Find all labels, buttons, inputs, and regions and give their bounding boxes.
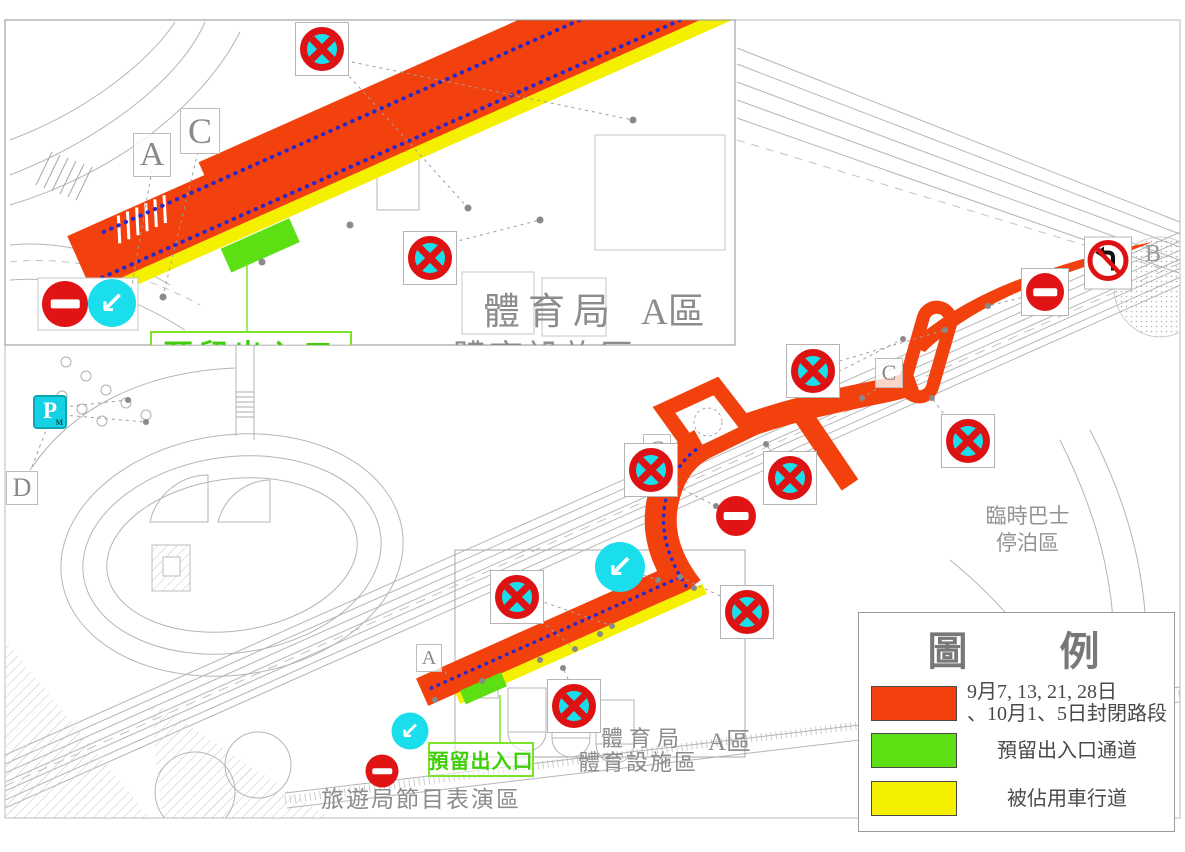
main-reserved-exit-box: 預留出入口 xyxy=(428,742,534,777)
no-stopping-sign xyxy=(786,344,840,398)
closed-road-label-line1: 9月7, 13, 21, 28日 xyxy=(967,681,1167,703)
legend-item-occupied-lane: 被佔用車行道 xyxy=(871,781,1167,816)
no-stopping-sign xyxy=(720,585,774,639)
bus-area-line2: 停泊區 xyxy=(985,530,1070,557)
reserved-passage-label: 預留出入口通道 xyxy=(967,740,1167,762)
no-entry-sign xyxy=(1021,268,1069,316)
no-entry-sign xyxy=(42,281,88,327)
no-stopping-sign xyxy=(941,414,995,468)
no-left-turn-sign xyxy=(1084,237,1132,290)
parking-sign-sub: M xyxy=(55,419,63,427)
main-zone-a-label: A區 xyxy=(708,722,751,758)
main-sports-facility-label: 體育設施區 xyxy=(578,745,698,777)
legend-item-closed-road: 9月7, 13, 21, 28日 、10月1、5日封閉路段 xyxy=(871,681,1167,725)
direction-arrow-sign: ↙ xyxy=(88,279,136,327)
no-entry-sign xyxy=(366,755,399,788)
main-marker-b: B xyxy=(1140,240,1166,268)
legend-panel: 圖 例 9月7, 13, 21, 28日 、10月1、5日封閉路段 預留出入口通… xyxy=(858,612,1175,832)
main-marker-c-upper: C xyxy=(875,358,903,388)
parking-sign: P M xyxy=(33,395,67,429)
no-entry-sign xyxy=(716,496,756,536)
occupied-lane-swatch xyxy=(871,781,957,816)
main-marker-d: D xyxy=(6,471,38,505)
bus-parking-area-label: 臨時巴士 停泊區 xyxy=(985,503,1070,557)
no-stopping-sign xyxy=(547,679,601,733)
legend-item-reserved-passage: 預留出入口通道 xyxy=(871,733,1167,768)
tourism-area-label: 旅遊局節目表演區 xyxy=(321,780,521,814)
closed-road-swatch xyxy=(871,686,957,721)
no-stopping-sign xyxy=(403,231,457,285)
no-stopping-sign xyxy=(490,570,544,624)
no-stopping-sign xyxy=(763,451,817,505)
road-closure-map: A C 體育局 A區 體育設施區 預留出入口 ↙ C C A D B P M 臨… xyxy=(0,0,1185,852)
no-stopping-sign xyxy=(295,22,349,76)
legend-title: 圖 例 xyxy=(879,619,1174,677)
bus-area-line1: 臨時巴士 xyxy=(985,503,1070,530)
direction-arrow-sign: ↙ xyxy=(595,542,645,592)
direction-arrow-sign: ↙ xyxy=(392,713,429,750)
occupied-lane-label: 被佔用車行道 xyxy=(967,788,1167,810)
reserved-passage-swatch xyxy=(871,733,957,768)
main-marker-a: A xyxy=(416,644,442,672)
no-stopping-sign xyxy=(624,443,678,497)
closed-road-label-line2: 、10月1、5日封閉路段 xyxy=(967,703,1167,725)
